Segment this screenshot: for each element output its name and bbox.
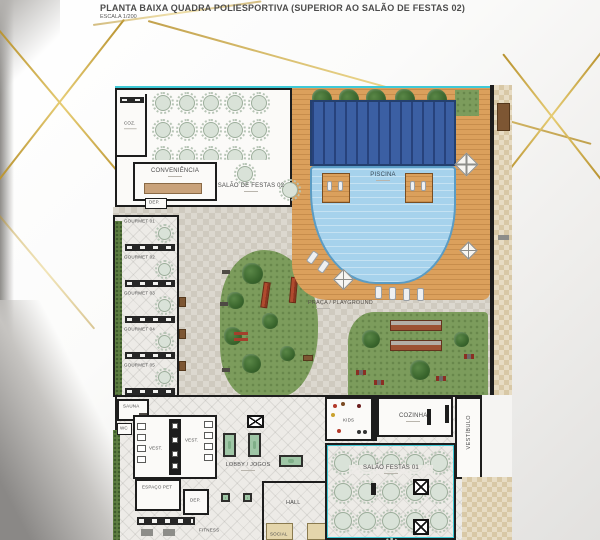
kids-label: KIDS (343, 419, 354, 424)
round-table-icon (251, 95, 267, 111)
pool-deck-island (322, 173, 350, 203)
planter-icon (179, 297, 186, 307)
conveniencia-label: CONVENIÊNCIA (135, 168, 215, 177)
lounger-icon (389, 287, 396, 300)
wc-label: WC (120, 427, 128, 432)
tree-icon (227, 292, 244, 309)
kitchen-counter (427, 409, 431, 425)
kitchen-counter (445, 405, 449, 423)
gym-equipment-icon (374, 380, 384, 385)
bench-icon (234, 338, 248, 341)
praca-label-text: PRAÇA / PLAYGROUND (308, 300, 373, 306)
bench-icon (220, 302, 228, 306)
area-dash (376, 180, 390, 181)
umbrella-icon (454, 152, 478, 176)
kitchen-counter (125, 244, 175, 251)
salao-festas-01-room: SALÃO FESTAS 01 (325, 443, 456, 540)
lounger-icon (375, 286, 382, 299)
terrace-bottom-right (462, 477, 512, 540)
cozinha-label-text: COZINHA (399, 413, 427, 419)
scale-label: ESCALA 1/200 (100, 14, 137, 20)
area-dash (241, 470, 255, 471)
kitchen-counter (125, 388, 175, 395)
coz-room: COZ. (117, 94, 147, 157)
game-table-icon (248, 433, 261, 457)
side-terrace (492, 85, 512, 397)
salao1-label-text: SALÃO FESTAS 01 (363, 465, 419, 471)
tree-icon (454, 332, 469, 347)
dep-bottom-room: DEP. (183, 489, 209, 515)
fitness-lawn (348, 312, 488, 397)
vest-label: VEST. (149, 447, 162, 452)
praca-label: PRAÇA / PLAYGROUND (308, 301, 408, 309)
piscina-label: PISCINA (350, 172, 416, 181)
wall (490, 85, 492, 397)
bench-icon (498, 235, 509, 240)
area-dash (316, 308, 330, 309)
espaco-pet-label: ESPAÇO PET (142, 486, 172, 491)
gourmet-room: GOURMET 05 (122, 361, 177, 397)
tree-icon (242, 354, 261, 373)
lounger-icon (327, 181, 332, 191)
area-dash (168, 176, 182, 177)
locker-icon (172, 437, 178, 443)
pool-deck: PISCINA (292, 88, 490, 300)
slide-icon (260, 282, 271, 309)
area-dash (244, 191, 258, 192)
round-table-icon (158, 299, 171, 312)
bench-icon (222, 270, 230, 274)
toilet-stall-icon (204, 421, 213, 428)
elevator-icon (413, 479, 429, 495)
lounger-icon (417, 288, 424, 301)
grass-patch (455, 90, 479, 116)
round-table-icon (158, 263, 171, 276)
hall-label: HALL (286, 501, 301, 507)
gourmet-label: GOURMET 02 (124, 256, 155, 261)
gourmet-column: GOURMET 01 GOURMET 02 GOURMET 03 GOURMET… (113, 215, 179, 397)
salao2-label: SALÃO DE FESTAS 02 (210, 183, 292, 192)
gourmet-label: GOURMET 05 (124, 364, 155, 369)
social-label: SOCIAL (270, 533, 288, 538)
toilet-stall-icon (204, 432, 213, 439)
gym-equipment-icon (436, 376, 446, 381)
round-table-icon (179, 122, 195, 138)
gourmet-label: GOURMET 04 (124, 328, 155, 333)
lounger-icon (317, 259, 330, 274)
tree-icon (262, 313, 278, 329)
gourmet-room: GOURMET 03 (122, 289, 177, 325)
round-table-icon (227, 122, 243, 138)
tree-icon (410, 360, 430, 380)
wc-room: WC (117, 423, 132, 435)
conveniencia-label-text: CONVENIÊNCIA (151, 168, 199, 174)
planter-icon (179, 361, 186, 371)
toilet-stall-icon (137, 423, 146, 430)
bench-icon (234, 332, 248, 335)
round-table-icon (227, 95, 243, 111)
lounger-icon (410, 181, 415, 191)
toy-icon (337, 429, 341, 433)
elevator-icon (413, 519, 429, 535)
gym-machine-icon (163, 529, 175, 536)
planter-icon (179, 329, 186, 339)
cozinha-room: COZINHA (377, 397, 453, 437)
cozinha-label: COZINHA (399, 413, 427, 422)
salao2-tables (151, 92, 293, 160)
round-table-icon (203, 149, 219, 160)
tree-icon (280, 346, 295, 361)
round-table-icon (382, 512, 400, 530)
toy-icon (363, 430, 367, 434)
round-table-icon (227, 149, 243, 160)
margin-area (482, 395, 512, 479)
coz-label: COZ. (124, 122, 137, 129)
lounger-icon (306, 250, 319, 265)
toilet-stall-icon (137, 445, 146, 452)
round-table-icon (251, 149, 267, 160)
area-dash (406, 421, 420, 422)
picnic-table-icon (390, 320, 442, 331)
round-table-icon (179, 95, 195, 111)
salao-festas-02-room: COZ. CONVENIÊNCIA DEP. SALÃO DE FESTAS 0… (115, 88, 292, 207)
page: { "header": { "title": "PLANTA BAIXA QUA… (0, 0, 600, 540)
kids-room: KIDS (325, 397, 373, 441)
toy-icon (357, 404, 361, 408)
gourmet-label: GOURMET 01 (124, 220, 155, 225)
dep-bottom-label: DEP. (190, 499, 201, 504)
lounger-icon (421, 181, 426, 191)
toilet-stall-icon (137, 434, 146, 441)
gourmet-room: GOURMET 04 (122, 325, 177, 361)
locker-icon (172, 463, 178, 469)
dep-top-room: DEP. (145, 198, 167, 209)
tree-icon (362, 330, 380, 348)
gym-machine-icon (141, 529, 153, 536)
tree-icon (224, 327, 242, 345)
coz-label-text: COZ. (124, 121, 135, 126)
page-title: PLANTA BAIXA QUADRA POLIESPORTIVA (SUPER… (100, 3, 465, 13)
sauna-label: SAUNA (123, 405, 139, 410)
toy-icon (331, 413, 335, 417)
locker-icon (172, 451, 178, 457)
round-table-icon (179, 149, 195, 160)
salao1-label: SALÃO FESTAS 01 (349, 465, 433, 474)
round-table-icon (334, 512, 352, 530)
toilet-stall-icon (204, 454, 213, 461)
toilet-stall-icon (137, 456, 146, 463)
bench-icon (222, 368, 230, 372)
round-table-icon (382, 483, 400, 501)
gym-equipment-icon (356, 370, 366, 375)
gourmet-room: GOURMET 01 (122, 217, 177, 253)
gourmet-label: GOURMET 03 (124, 292, 155, 297)
toilet-stall-icon (204, 443, 213, 450)
round-table-icon (158, 227, 171, 240)
conveniencia-room: CONVENIÊNCIA (133, 162, 217, 201)
floor-plan: PRAÇA / PLAYGROUND PISCINA (113, 85, 512, 540)
round-table-icon (158, 371, 171, 384)
round-table-icon (334, 483, 352, 501)
fitness-counter (137, 517, 195, 525)
kitchen-counter (125, 316, 175, 323)
round-table-icon (358, 512, 376, 530)
planter-icon (303, 355, 313, 361)
lobby-jogos-label-text: LOBBY / JOGOS (226, 462, 271, 468)
round-table-icon (155, 95, 171, 111)
round-table-icon (203, 95, 219, 111)
game-table-icon (223, 433, 236, 457)
top-left-shade (0, 0, 60, 95)
vestibulo-label: VESTÍBULO (466, 415, 472, 449)
round-table-icon (158, 335, 171, 348)
round-table-icon (155, 149, 171, 160)
lobby-jogos-label: LOBBY / JOGOS (217, 463, 279, 471)
elevator-icon (247, 415, 264, 428)
locker-icon (172, 423, 178, 429)
hedge-strip (115, 221, 122, 395)
lounger-icon (338, 181, 343, 191)
changing-rooms-block: VEST. VEST. (133, 415, 217, 479)
round-table-icon (430, 483, 448, 501)
piscina-label-text: PISCINA (370, 172, 395, 178)
picnic-table-icon (390, 340, 442, 351)
area-dash (124, 128, 137, 129)
umbrella-icon (459, 241, 477, 259)
bottom-left-shade (0, 300, 125, 540)
game-table-icon (243, 493, 252, 502)
fitness-label: FITNESS (199, 529, 219, 534)
vest-label: VEST. (185, 439, 198, 444)
vestibulo-room: VESTÍBULO (455, 397, 482, 479)
round-table-icon (251, 122, 267, 138)
kitchen-counter (125, 280, 175, 287)
gourmet-room: GOURMET 02 (122, 253, 177, 289)
dep-top-label: DEP. (149, 201, 160, 206)
toy-icon (333, 404, 337, 408)
gym-equipment-icon (464, 354, 474, 359)
kitchen-counter (125, 352, 175, 359)
lap-pool (310, 100, 456, 166)
planter-icon (497, 103, 510, 131)
round-table-icon (237, 166, 253, 182)
round-table-icon (155, 122, 171, 138)
toy-icon (341, 402, 345, 406)
round-table-icon (203, 122, 219, 138)
area-dash (384, 473, 398, 474)
hedge-strip (113, 430, 120, 540)
round-table-icon (430, 512, 448, 530)
game-table-icon (221, 493, 230, 502)
espaco-pet-room: ESPAÇO PET (135, 479, 181, 511)
store-counter (144, 183, 202, 194)
billiards-table-icon (279, 455, 303, 467)
toy-icon (357, 430, 361, 434)
pillar (371, 483, 376, 495)
tree-icon (242, 263, 263, 284)
lounger-icon (403, 288, 410, 301)
kitchen-counter (120, 97, 144, 103)
social-room: SOCIAL (266, 523, 293, 540)
salao2-label-text: SALÃO DE FESTAS 02 (218, 183, 285, 189)
